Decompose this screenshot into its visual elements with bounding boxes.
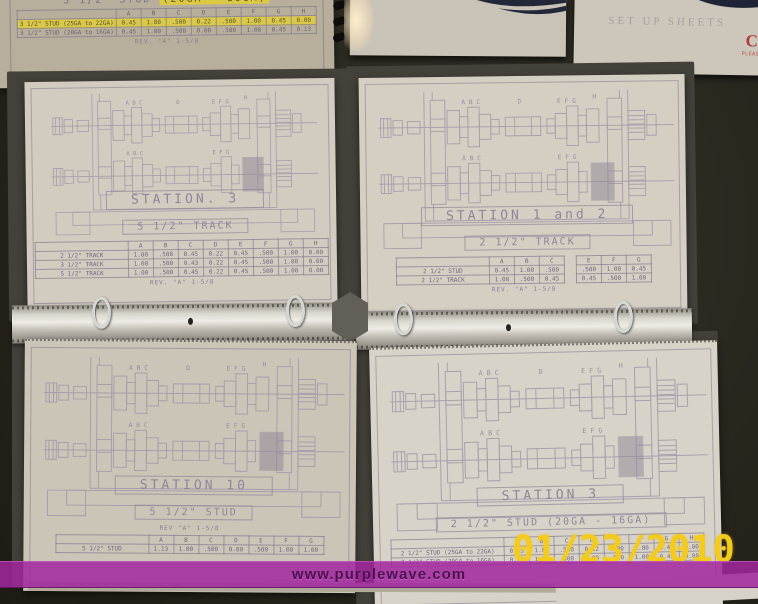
- drawing-label: A B C: [462, 155, 481, 162]
- spec-cell: 1.00: [129, 268, 154, 277]
- spec-cell: [564, 274, 576, 283]
- size-label: 2 1/2" TRACK: [464, 234, 590, 251]
- binder-spine: [12, 303, 350, 344]
- spec-row-label: 2 1/2" TRACK: [396, 275, 489, 285]
- spec-cell: 0.45: [228, 248, 253, 257]
- spec-col-header: H: [291, 6, 316, 15]
- drawing-label: E F G: [582, 427, 602, 435]
- site-banner: www.purplewave.com: [0, 561, 758, 588]
- tl-spec-table: ABCDEFGH3 1/2" STUD (25GA to 22GA)0.451.…: [11, 6, 323, 38]
- spec-cell: 1.00: [298, 545, 323, 554]
- spec-table: ABCDEFGH3 1/2" STUD (25GA to 22GA)0.451.…: [17, 6, 317, 38]
- roller-drawing-area: A B C D E F G H A B C E F G STATION. 3 5…: [36, 87, 334, 239]
- binder-ring-icon: [394, 303, 413, 335]
- drawing-label: E F G: [226, 423, 245, 430]
- roller-drawing-area: A B C D E F G H A B C E F G STATION 10 5…: [35, 350, 354, 524]
- drawing-label: A B C: [126, 101, 143, 107]
- spec-col-header: E: [248, 536, 273, 545]
- spec-cell: .500: [539, 265, 564, 274]
- rev-note: REV. "A" 1-5/8: [368, 284, 680, 295]
- spec-cell: .500: [198, 545, 223, 554]
- spec-cell: 1.00: [241, 25, 266, 34]
- spec-cell: 1.00: [278, 257, 303, 266]
- spec-row-label: 5 1/2" STUD: [55, 544, 148, 554]
- spec-col-header: C: [178, 240, 203, 249]
- drawing-label: A B C: [461, 99, 480, 106]
- binder-faint-title: SET UP SHEETS: [574, 14, 758, 29]
- spec-col-header: B: [514, 256, 539, 265]
- logo-swoosh-icon: [446, 0, 566, 23]
- roller-tooling-drawing: A B C D E F G H A B C E F G: [370, 83, 684, 255]
- spec-col-header: F: [253, 239, 278, 248]
- spec-table: ABCDEFGH2 1/2" TRACK1.00.5000.450.220.45…: [35, 238, 329, 279]
- spec-cell: 1.00: [489, 275, 514, 284]
- spec-cell: 1.00: [273, 545, 298, 554]
- spec-cell: .500: [514, 274, 539, 283]
- roller-drawing-area: A B C D E F G H A B C E F G STATION 3 2 …: [380, 351, 718, 537]
- drawing-label: E F G: [226, 365, 245, 372]
- sheet-border-frame: 3 1/2" STUD (20GA - 16GA) ABCDEFGH3 1/2"…: [9, 0, 324, 80]
- drawing-label: E F G: [557, 98, 576, 105]
- spec-cell: 1.00: [141, 26, 166, 35]
- spec-col-header: C: [198, 536, 223, 545]
- spec-col-header: E: [576, 256, 601, 265]
- spec-cell: .500: [601, 273, 626, 282]
- spec-col-header: C: [539, 256, 564, 265]
- spec-col-header: G: [266, 7, 291, 16]
- spec-cell: .500: [216, 25, 241, 34]
- spec-cell: 0.00: [303, 256, 328, 265]
- binder-ring-icon: [92, 297, 111, 329]
- spec-col-header: D: [203, 240, 228, 249]
- station-drawing-template: A B C D E F G H A B C E F G: [35, 350, 354, 524]
- spec-cell: 1.00: [128, 259, 153, 268]
- spec-col-header: E: [216, 7, 241, 16]
- size-label: 5 1/2" STUD: [135, 505, 253, 521]
- setup-sheet-station1-2-track: A B C D E F G H A B C E F G STATION 1 an…: [359, 74, 688, 318]
- sheet-title-highlight: (20GA - 16GA): [159, 0, 269, 5]
- binder-ring-icon: [286, 295, 305, 327]
- spec-col-header: D: [223, 536, 248, 545]
- auction-photo: 3 1/2" STUD (20GA - 16GA) ABCDEFGH3 1/2"…: [0, 0, 758, 604]
- station-label: STATION 10: [115, 475, 273, 495]
- spec-col-header: A: [128, 241, 153, 250]
- spec-cell: 1.00: [141, 17, 166, 26]
- drawing-label: E F G: [212, 150, 230, 156]
- spec-cell: 0.13: [291, 24, 316, 33]
- binder-red-note: PLEASE R: [742, 51, 758, 57]
- spec-col-header: E: [228, 239, 253, 248]
- drawing-label: H: [592, 93, 596, 100]
- spec-cell: 1.00: [278, 248, 303, 257]
- station-label: STATION. 3: [106, 189, 265, 210]
- spec-table: ABCEFG2 1/2" STUD0.451.00.500.5001.000.4…: [396, 254, 652, 285]
- spec-cell: 0.45: [489, 266, 514, 275]
- spec-cell: 1.00: [601, 264, 626, 273]
- spec-cell: 1.00: [279, 266, 304, 275]
- spec-cell: 0.45: [539, 274, 564, 283]
- spec-col-header: H: [303, 238, 328, 247]
- station-drawing-template: A B C D E F G H A B C E F G: [36, 87, 334, 239]
- spec-cell: 0.45: [228, 257, 253, 266]
- spec-col-header: G: [626, 255, 651, 264]
- spec-row: 5 1/2" STUD1.131.00.5000.00.5001.001.00: [55, 544, 323, 555]
- drawing-label: D: [517, 98, 521, 105]
- spec-table: ABCDEFG5 1/2" STUD1.131.00.5000.00.5001.…: [55, 534, 324, 555]
- station-drawing-template: A B C D E F G H A B C E F G: [370, 83, 684, 255]
- spec-col-header: F: [601, 255, 626, 264]
- spec-cell: .500: [153, 259, 178, 268]
- binder-red-letter: C: [745, 31, 758, 51]
- spec-cell: .500: [154, 268, 179, 277]
- spec-cell: 1.00: [241, 16, 266, 25]
- spec-cell: 0.22: [203, 249, 228, 258]
- drawing-label: H: [263, 361, 267, 368]
- setup-sheet-station10-stud: A B C D E F G H A B C E F G STATION 10 5…: [23, 339, 357, 593]
- spec-col-header: A: [489, 257, 514, 266]
- spec-col-header: F: [241, 7, 266, 16]
- spec-cell: 0.22: [204, 267, 229, 276]
- page-border: A B C D E F G H A B C E F G STATION. 3 5…: [31, 84, 332, 304]
- sheet-title-text: 3 1/2" STUD: [63, 0, 151, 6]
- punched-hole: [506, 324, 511, 331]
- roller-tooling-drawing: A B C D E F G H A B C E F G: [380, 351, 718, 537]
- drawing-label: A B C: [129, 365, 148, 372]
- drawing-label: D: [539, 368, 543, 376]
- spec-cell: 0.00: [191, 26, 216, 35]
- drawing-label: A B C: [479, 369, 499, 377]
- spec-cell: 0.45: [266, 25, 291, 34]
- spec-cell: 0.00: [304, 265, 329, 274]
- spec-cell: 0.00: [223, 545, 248, 554]
- page-border: A B C D E F G H A B C E F G STATION 10 5…: [29, 347, 351, 587]
- roller-tooling-drawing: A B C D E F G H A B C E F G: [35, 350, 354, 524]
- drawing-label: E F G: [558, 154, 577, 161]
- spec-cell: 0.45: [116, 18, 141, 27]
- rev-note: REV "A" 1-5/8: [31, 524, 349, 533]
- spec-cell: 0.45: [266, 16, 291, 25]
- drawing-label: H: [619, 362, 623, 370]
- spec-table-slot: ABCDEFGH2 1/2" TRACK1.00.5000.450.220.45…: [34, 238, 330, 279]
- punched-hole: [188, 318, 193, 325]
- spiral-notebook-cover: [350, 0, 566, 57]
- spec-cell: .500: [253, 248, 278, 257]
- spec-cell: .500: [248, 545, 273, 554]
- spec-cell: 1.00: [128, 250, 153, 259]
- size-label: 5 1/2" TRACK: [122, 218, 248, 235]
- spec-cell: 1.13: [148, 544, 173, 553]
- spec-cell: 0.45: [179, 267, 204, 276]
- spec-cell: 0.45: [229, 266, 254, 275]
- drawing-label: A B C: [129, 422, 148, 429]
- drawing-label: D: [176, 100, 180, 106]
- camera-glare: [344, 0, 374, 51]
- drawing-label: H: [244, 95, 247, 101]
- spec-table-slot: ABCDEFG5 1/2" STUD1.131.00.5000.00.5001.…: [30, 534, 348, 555]
- spec-col-header: B: [141, 8, 166, 17]
- spec-cell: 0.22: [203, 258, 228, 267]
- spec-cell: .500: [153, 250, 178, 259]
- drawing-label: E F G: [212, 99, 230, 105]
- roller-drawing-area: A B C D E F G H A B C E F G STATION 1 an…: [370, 83, 684, 255]
- spec-cell: .500: [576, 265, 601, 274]
- drawing-label: D: [186, 365, 190, 372]
- spec-col-header: C: [166, 8, 191, 17]
- spec-row: 2 1/2" TRACK1.00.5000.450.45.5001.00: [396, 273, 651, 285]
- spec-cell: [564, 265, 576, 274]
- site-banner-url: www.purplewave.com: [292, 566, 466, 583]
- spec-cell: .500: [166, 17, 191, 26]
- rev-note: REV. "A" 1-5/8: [34, 277, 330, 288]
- spec-cell: .500: [216, 16, 241, 25]
- spec-cell: 0.22: [191, 17, 216, 26]
- spec-table-slot: ABCEFG2 1/2" STUD0.451.00.500.5001.000.4…: [368, 254, 680, 286]
- drawing-label: A B C: [126, 151, 143, 157]
- spec-col-header: [564, 256, 576, 265]
- spec-cell: 1.00: [626, 273, 651, 282]
- binder-ring-icon: [614, 301, 633, 333]
- spec-cell: 0.45: [178, 249, 203, 258]
- spec-col-header: B: [153, 241, 178, 250]
- setup-sheet-station3-track: A B C D E F G H A B C E F G STATION. 3 5…: [24, 78, 337, 310]
- spec-cell: 1.00: [173, 544, 198, 553]
- spec-col-header: A: [148, 535, 173, 544]
- station-drawing-template: A B C D E F G H A B C E F G: [380, 351, 718, 537]
- roller-tooling-drawing: A B C D E F G H A B C E F G: [36, 87, 334, 239]
- spec-cell: .500: [254, 266, 279, 275]
- spec-col-header: G: [298, 536, 323, 545]
- spec-row-label: 3 1/2" STUD (20GA to 16GA): [17, 27, 116, 37]
- spec-cell: 0.00: [303, 247, 328, 256]
- spec-cell: 0.00: [291, 15, 316, 24]
- spec-col-header: B: [173, 535, 198, 544]
- spec-cell: 0.45: [626, 264, 651, 273]
- spec-cell: .500: [166, 26, 191, 35]
- spec-col-header: F: [273, 536, 298, 545]
- drawing-label: A B C: [480, 429, 500, 437]
- spec-cell: 0.43: [178, 258, 203, 267]
- spec-cell: 1.00: [514, 265, 539, 274]
- spec-col-header: G: [278, 239, 303, 248]
- spec-cell: 0.45: [116, 27, 141, 36]
- drawing-label: E F G: [581, 367, 601, 375]
- spec-row-label: 5 1/2" TRACK: [36, 268, 129, 278]
- station-label: STATION 1 and 2: [421, 205, 634, 227]
- spec-cell: .500: [253, 257, 278, 266]
- spec-col-header: D: [191, 8, 216, 17]
- station-label: STATION 3: [477, 484, 625, 506]
- spec-cell: 0.45: [576, 274, 601, 283]
- spec-col-header: A: [116, 9, 141, 18]
- page-border: A B C D E F G H A B C E F G STATION 1 an…: [365, 80, 682, 312]
